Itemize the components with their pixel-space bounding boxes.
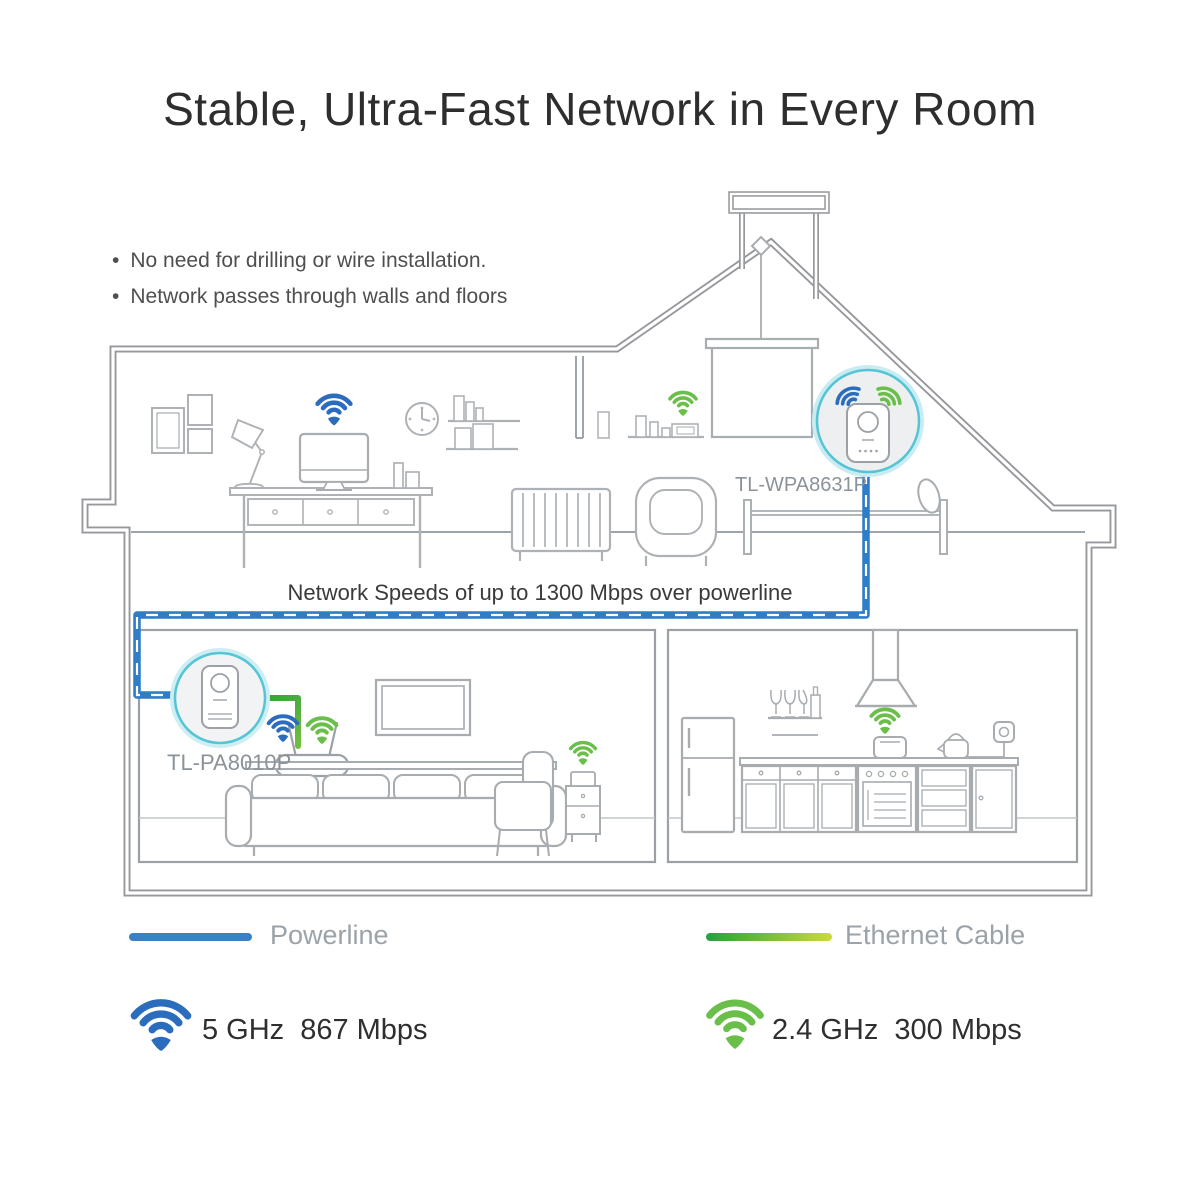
adapter-pa8010p [172, 650, 268, 746]
kitchen-cabinets [742, 766, 856, 832]
wifi-24ghz-row: 2.4 GHz 300 Mbps [772, 1014, 1022, 1047]
page-title: Stable, Ultra-Fast Network in Every Room [0, 82, 1200, 136]
fridge [682, 718, 734, 832]
leaning-mirror [915, 477, 944, 515]
attic-bench [744, 500, 947, 554]
bottle-and-cup [394, 463, 419, 488]
picture-frames [152, 395, 212, 453]
sideboard-desk [230, 488, 432, 568]
wifi-icon-router-blue [269, 716, 298, 742]
wall-clock [406, 403, 438, 435]
wifi-icon-attic-green [670, 392, 696, 416]
wifi-icon-kitchen-green [871, 709, 898, 734]
wifi-icon-imac-blue [318, 396, 351, 426]
kitchen-drawers [918, 766, 970, 832]
wall-picture-small [598, 412, 609, 438]
attic-picture-frame [706, 339, 818, 437]
set-top-device [571, 772, 595, 786]
wall-shelves [446, 396, 520, 449]
wifi-5ghz-band: 5 GHz [202, 1014, 284, 1047]
wifi-5ghz-row: 5 GHz 867 Mbps [202, 1014, 428, 1047]
side-cabinet [566, 772, 600, 842]
wifi-icon-cabinet-green [571, 743, 596, 765]
adapter-pa8010p-label: TL-PA8010P [167, 750, 291, 776]
bullet-list: No need for drilling or wire installatio… [112, 243, 507, 315]
range-hood [855, 630, 917, 706]
kitchen-cabinet-right [972, 766, 1016, 832]
wine-shelf [768, 687, 822, 735]
wifi-24ghz-icon [710, 1003, 761, 1049]
power-outlet [966, 722, 1014, 757]
wifi-5ghz-icon [134, 1003, 187, 1051]
legend-powerline-label: Powerline [270, 920, 389, 951]
bullet-item-1: No need for drilling or wire installatio… [112, 243, 507, 279]
adapter-wpa8631p [814, 367, 922, 475]
bullet-item-2: Network passes through walls and floors [112, 279, 507, 315]
smart-toaster [874, 737, 906, 758]
powerline-caption: Network Speeds of up to 1300 Mbps over p… [260, 580, 820, 606]
imac-computer [300, 434, 368, 490]
kettle [938, 734, 968, 758]
outlet-cord [966, 742, 1004, 757]
desk-lamp [232, 420, 264, 490]
infographic: Stable, Ultra-Fast Network in Every Room… [0, 0, 1200, 1200]
attic-armchair [636, 478, 716, 566]
legend-ethernet-label: Ethernet Cable [845, 920, 1025, 951]
tv [376, 680, 470, 735]
radiator [512, 489, 610, 561]
wifi-24ghz-band: 2.4 GHz [772, 1014, 878, 1047]
wifi-24ghz-speed: 300 Mbps [894, 1014, 1021, 1047]
attic-shelf [628, 416, 704, 437]
oven [858, 766, 916, 832]
adapter-wpa8631p-label: TL-WPA8631P [735, 474, 867, 497]
kitchen-counter [740, 758, 1018, 765]
wifi-5ghz-speed: 867 Mbps [300, 1014, 427, 1047]
